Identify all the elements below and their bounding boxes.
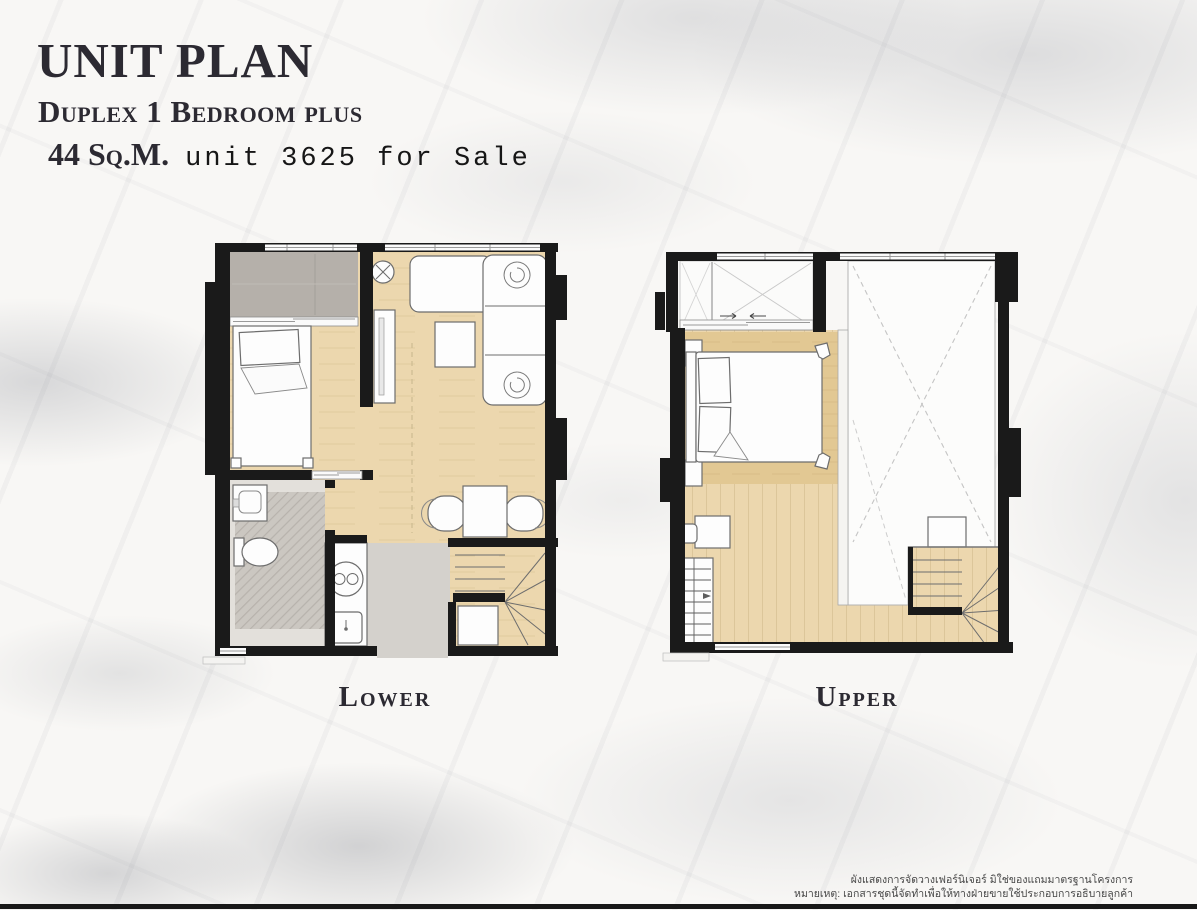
- stair-wall-stub: [453, 593, 505, 602]
- floor-lamp-icon: [372, 261, 394, 283]
- unit-type-subtitle: Duplex 1 Bedroom plus: [38, 96, 363, 127]
- bathroom-sink: [233, 485, 267, 521]
- single-bed: [231, 326, 313, 468]
- kitchen-entry-tiles: [367, 543, 450, 646]
- sale-line: 44 Sq.M.unit 3625 for Sale: [48, 137, 531, 175]
- pillow: [698, 357, 731, 403]
- coffee-table: [435, 322, 475, 367]
- upper-floor-label: Upper: [662, 681, 1052, 714]
- bath-kitchen-wall: [325, 530, 335, 646]
- stair-landing: [928, 517, 966, 547]
- thai-disclaimer: ผังแสดงการจัดวางเฟอร์นิเจอร์ มิใช่ของแถม…: [794, 873, 1133, 901]
- toilet: [234, 538, 278, 566]
- disclaimer-line-2: หมายเหตุ: เอกสารชุดนี้จัดทำเพื่อให้ทางฝ่…: [794, 887, 1133, 901]
- headboard: [686, 352, 696, 462]
- window: [265, 245, 357, 251]
- desk: [695, 516, 730, 548]
- entry-threshold: [377, 644, 448, 658]
- outside-ledge: [663, 653, 709, 661]
- lower-floor-label: Lower: [195, 681, 575, 714]
- bottom-border-bar: [0, 904, 1197, 909]
- sofa-chaise: [410, 256, 492, 312]
- bed-post: [303, 458, 313, 468]
- dining-chair: [428, 496, 466, 531]
- disclaimer-line-1: ผังแสดงการจัดวางเฟอร์นิเจอร์ มิใช่ของแถม…: [794, 873, 1133, 887]
- dining-chair: [505, 496, 543, 531]
- bed-post: [231, 458, 241, 468]
- upper-floor-plan: [650, 240, 1040, 670]
- window: [385, 245, 540, 251]
- bedroom-sliding-door: [312, 471, 362, 479]
- ledge-sliding-door: [680, 320, 813, 330]
- understair-cabinet: [458, 606, 498, 645]
- pillow: [239, 329, 300, 365]
- page-title: UNIT PLAN: [37, 36, 313, 85]
- upper-ledge: [680, 261, 813, 330]
- balcony-sliding-door: [230, 317, 358, 326]
- dining-stair-wall: [448, 538, 558, 547]
- bedside-table: [685, 460, 702, 486]
- outside-ledge: [203, 657, 245, 664]
- void-railing: [838, 330, 848, 605]
- area-label: 44 Sq.M.: [48, 136, 169, 172]
- lower-balcony: [230, 252, 358, 326]
- tv-cabinet: [374, 310, 395, 403]
- window: [717, 254, 813, 260]
- sofa-body: [483, 255, 547, 405]
- bedroom-living-wall: [360, 243, 373, 407]
- bedroom-bath-wall: [215, 470, 312, 480]
- unit-sale-label: unit 3625 for Sale: [185, 144, 531, 174]
- ledge-side-wall: [813, 252, 826, 332]
- stair-wall-stub: [908, 607, 962, 615]
- unit-plan-sheet: UNIT PLAN Duplex 1 Bedroom plus 44 Sq.M.…: [0, 0, 1197, 910]
- lower-floor-plan: [195, 228, 575, 668]
- window: [840, 254, 995, 260]
- dining-table: [463, 486, 507, 537]
